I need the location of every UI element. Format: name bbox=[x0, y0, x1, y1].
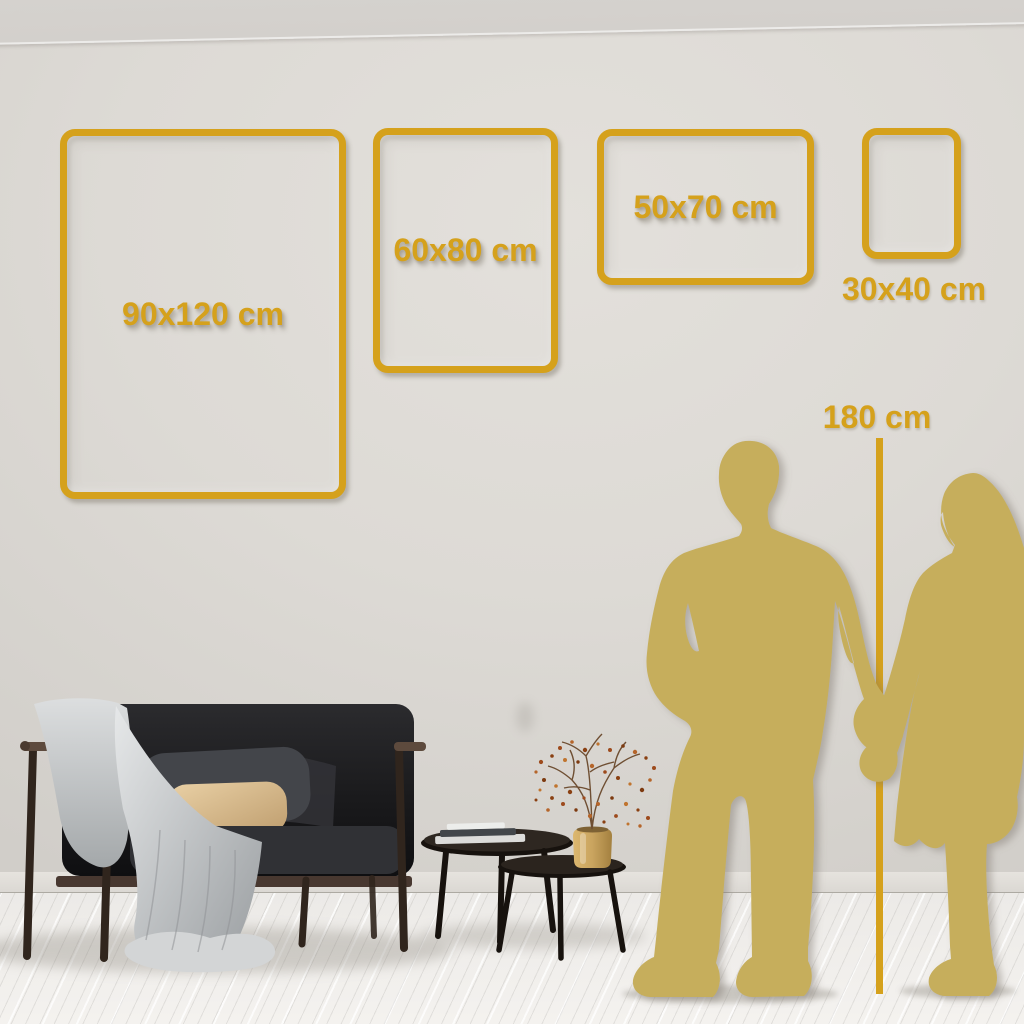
wall-smudge bbox=[516, 702, 534, 732]
books bbox=[435, 822, 525, 844]
size-frame-90x120: 90x120 cm bbox=[60, 129, 346, 499]
ceiling-line bbox=[0, 0, 1024, 45]
height-reference-line bbox=[876, 438, 883, 994]
size-frame-60x80: 60x80 cm bbox=[373, 128, 558, 373]
size-frame-30x40 bbox=[862, 128, 961, 259]
size-frame-50x70-label: 50x70 cm bbox=[633, 189, 777, 226]
baseboard bbox=[0, 872, 1024, 893]
size-frame-60x80-label: 60x80 cm bbox=[393, 232, 537, 269]
size-guide-scene: 90x120 cm 60x80 cm 50x70 cm 30x40 cm 180… bbox=[0, 0, 1024, 1024]
plant-berries bbox=[534, 740, 656, 828]
dried-plant bbox=[534, 734, 656, 829]
size-frame-30x40-label: 30x40 cm bbox=[836, 271, 992, 308]
height-marker-label: 180 cm bbox=[808, 399, 946, 436]
wood-floor bbox=[0, 893, 1024, 1024]
vase bbox=[573, 827, 612, 869]
size-frame-50x70: 50x70 cm bbox=[597, 129, 814, 285]
size-frame-90x120-label: 90x120 cm bbox=[122, 296, 284, 333]
